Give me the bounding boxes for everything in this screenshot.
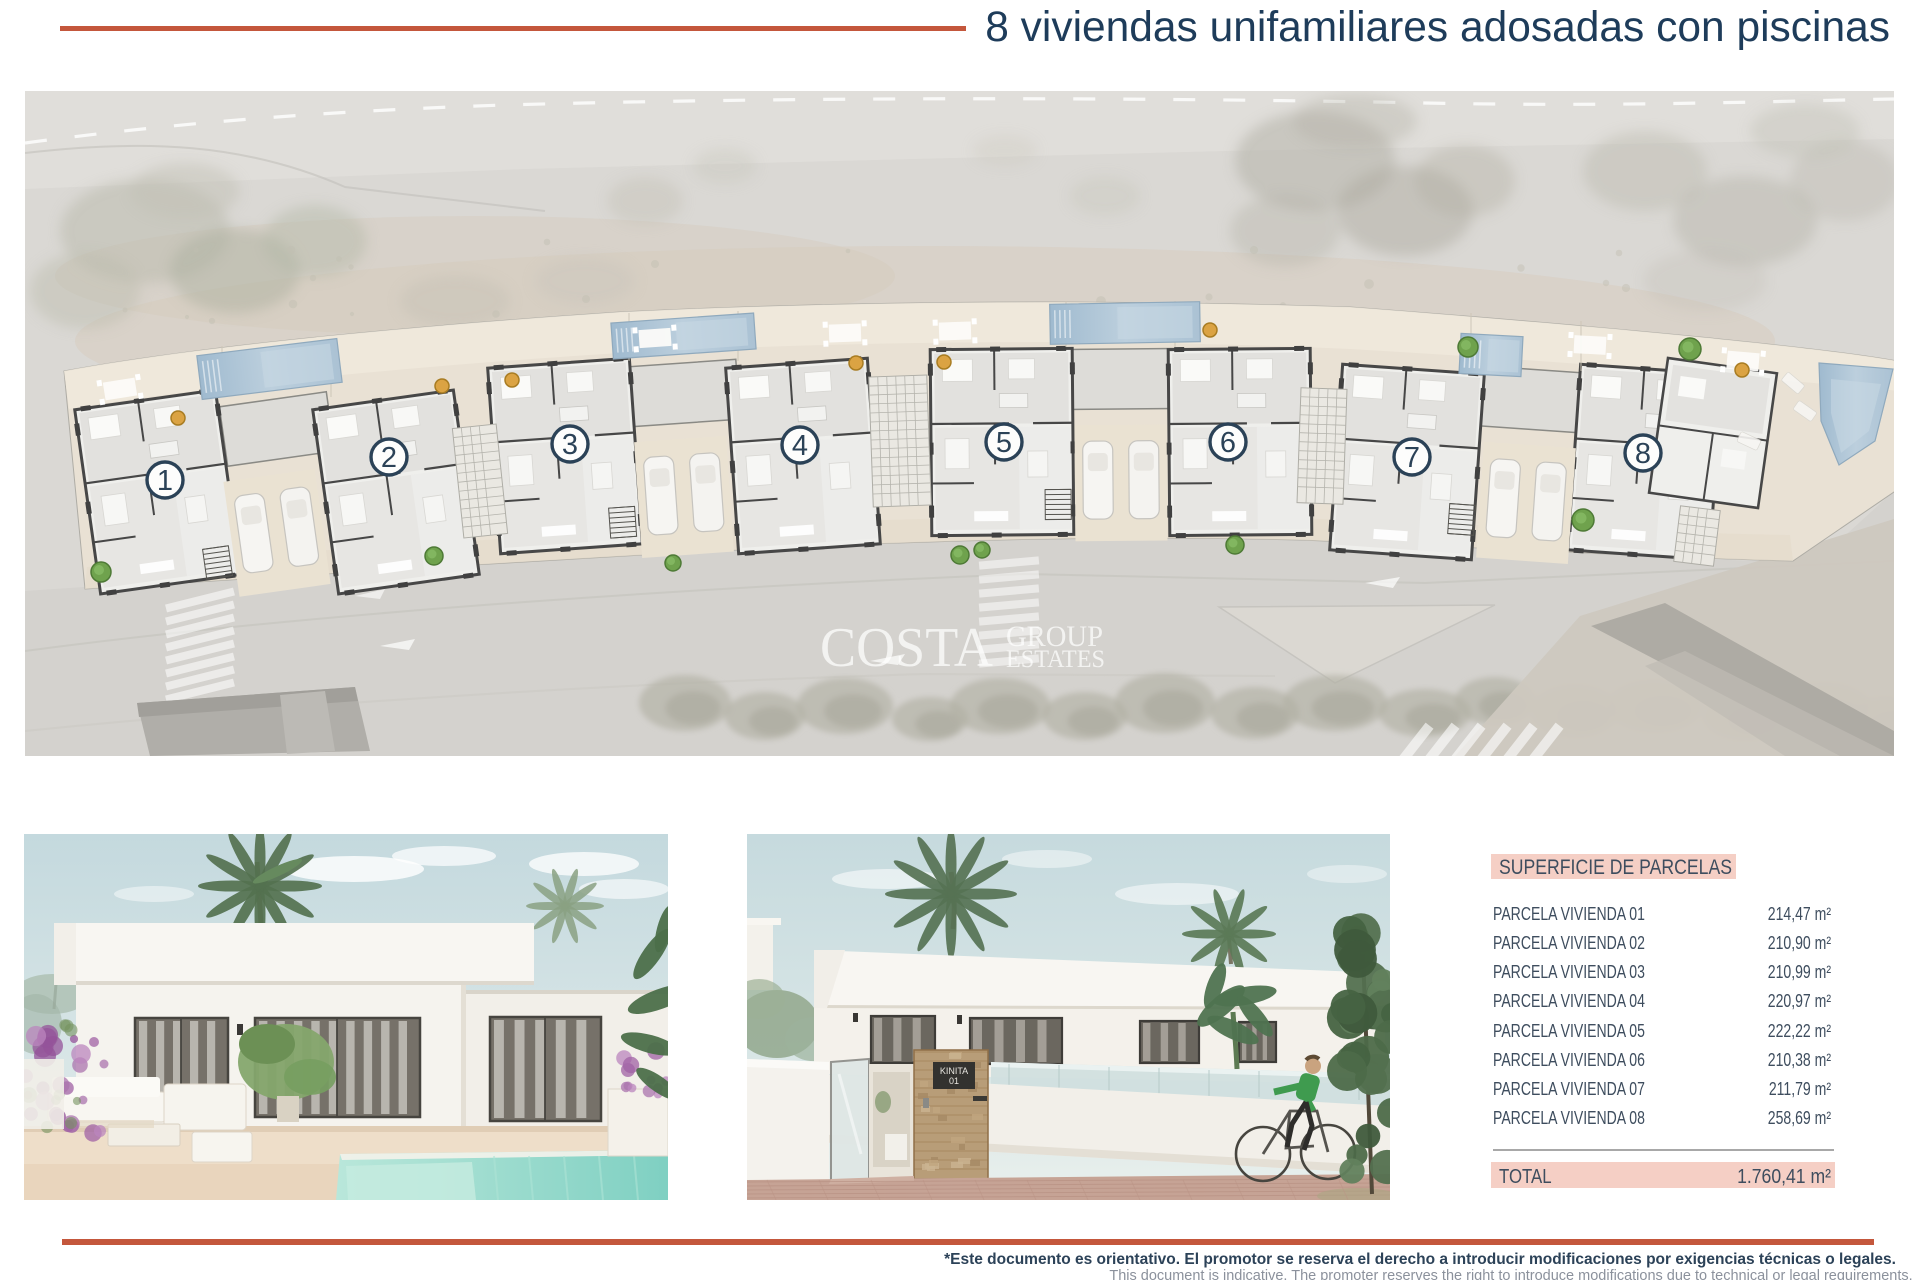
svg-text:ESTATES: ESTATES — [1006, 646, 1105, 673]
svg-text:7: 7 — [1404, 442, 1420, 474]
svg-text:5: 5 — [996, 427, 1012, 459]
svg-text:COSTA: COSTA — [820, 617, 994, 679]
svg-text:2: 2 — [381, 442, 397, 474]
svg-text:8: 8 — [1635, 438, 1651, 470]
svg-text:01: 01 — [949, 1076, 959, 1086]
svg-text:1: 1 — [157, 465, 173, 497]
svg-text:3: 3 — [562, 429, 578, 461]
svg-text:4: 4 — [792, 430, 808, 462]
svg-text:KINITA: KINITA — [940, 1066, 968, 1076]
svg-text:6: 6 — [1220, 427, 1236, 459]
